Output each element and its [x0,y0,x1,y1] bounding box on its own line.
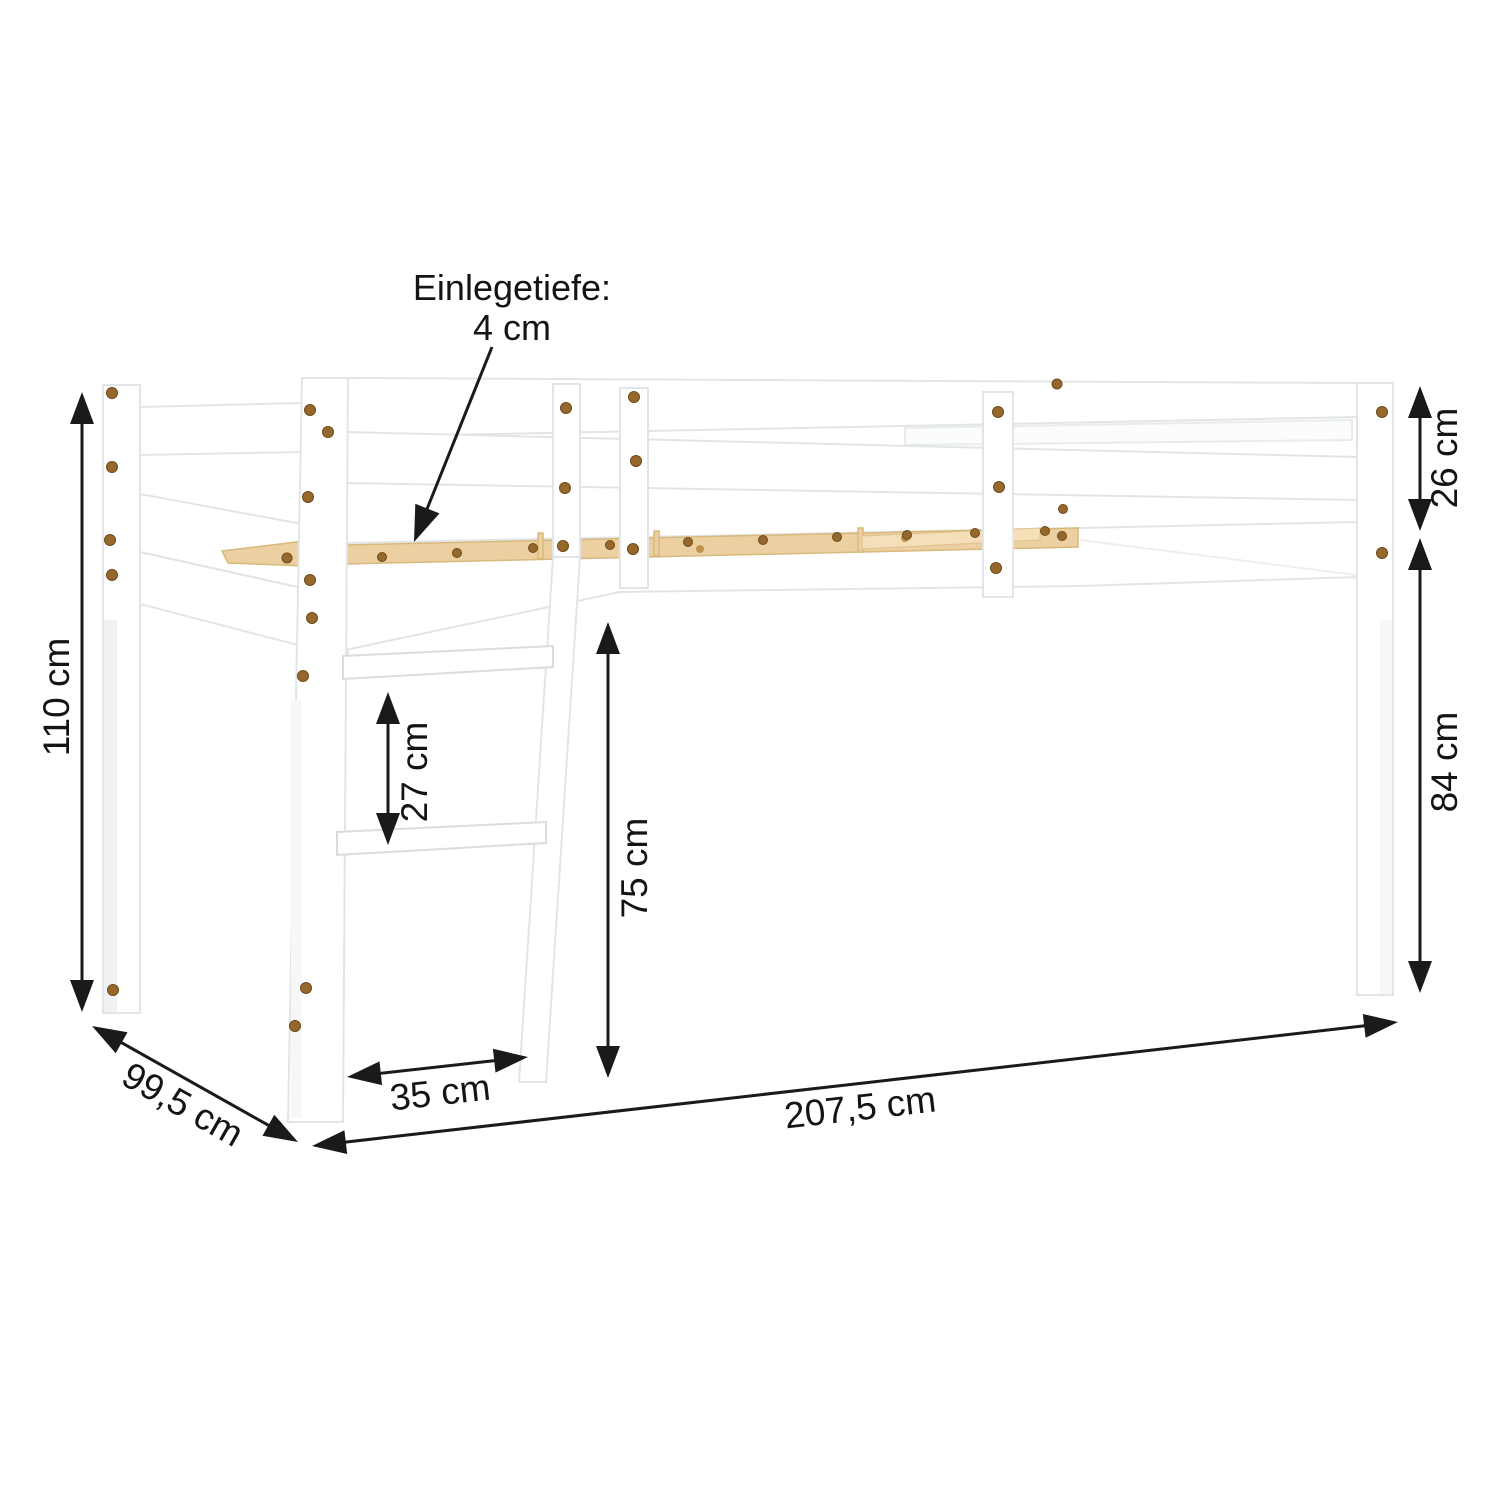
insert-depth-label-line1: Einlegetiefe: [413,267,611,308]
dim-label-total-height: 110 cm [36,638,77,757]
insert-depth-label-line2: 4 cm [473,307,551,348]
dim-label-ladder-width: 35 cm [388,1067,493,1119]
dim-label-under-clearance: 75 cm [614,818,655,919]
bed-rear-right-post [1357,383,1393,995]
dim-total-height: 110 cm [36,392,94,1012]
diagram-canvas: Einlegetiefe: 4 cm 110 cm 99,5 cm 27 cm … [0,0,1500,1500]
dim-depth: 99,5 cm [92,1026,298,1155]
dim-label-rung-spacing: 27 cm [394,722,435,823]
dim-under-clearance: 75 cm [596,622,655,1078]
dim-label-guard-rail-height: 26 cm [1424,408,1465,509]
bed-rear-left-post [103,385,140,1013]
dim-rung-spacing: 27 cm [376,692,435,845]
ladder-rail [519,557,580,1082]
dim-leg-height: 84 cm [1408,538,1465,993]
guard-post-ladder [620,388,648,588]
headboard-rail-top [140,403,302,455]
bed-front-left-leg [288,378,348,1122]
ladder-rung-1 [343,646,553,679]
loft-bed-dimension-diagram: Einlegetiefe: 4 cm 110 cm 99,5 cm 27 cm … [0,0,1500,1500]
dim-guard-rail-height: 26 cm [1408,386,1465,531]
dim-label-leg-height: 84 cm [1424,712,1465,813]
dim-ladder-width: 35 cm [347,1049,528,1119]
ladder-rung-2 [337,822,546,855]
dim-label-total-length: 207,5 cm [782,1079,938,1137]
